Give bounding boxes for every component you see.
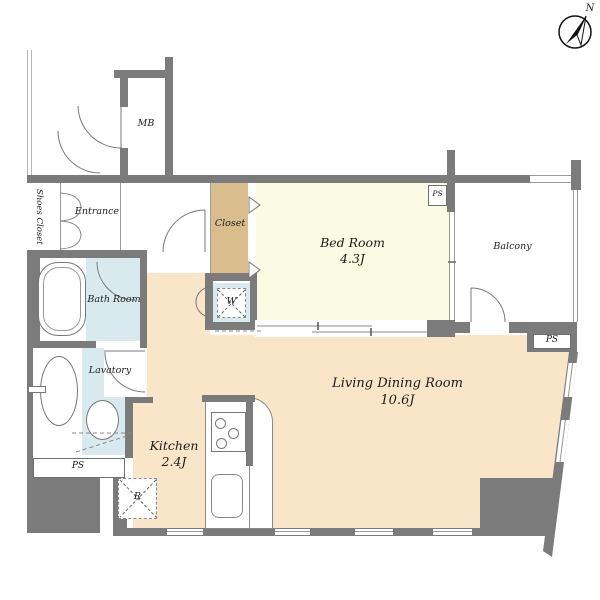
shoes-closet-door-icon bbox=[60, 193, 81, 249]
entrance-door-swing-icon bbox=[58, 131, 100, 173]
ps-label: PS bbox=[428, 189, 447, 199]
sliding-door-lines bbox=[257, 326, 427, 332]
bedroom-label: Bed Room4.3J bbox=[290, 235, 415, 268]
balcony-label: Balcony bbox=[475, 241, 550, 253]
structural-block bbox=[480, 478, 554, 536]
lavatory-label: Lavatory bbox=[72, 365, 148, 377]
bathroom-label: Bath Room bbox=[75, 294, 153, 306]
entrance-label: Entrance bbox=[62, 206, 132, 218]
closet-label: Closet bbox=[205, 218, 255, 230]
ps-label: PS bbox=[533, 335, 571, 347]
hall-door-swing-icon bbox=[163, 210, 205, 252]
shoes-closet-label: Shoes Closet bbox=[33, 186, 44, 248]
ps-label: PS bbox=[40, 461, 116, 473]
washer-label: W bbox=[217, 296, 246, 308]
mb-label: MB bbox=[130, 118, 162, 130]
north-compass-icon bbox=[559, 16, 591, 48]
mb-door-swing-icon bbox=[78, 106, 121, 148]
balcony-door-swing-icon bbox=[471, 288, 505, 322]
ldk-folding-door-icon bbox=[196, 302, 211, 317]
floor-plan: Shoes Closet Entrance MB Closet Bed Room… bbox=[0, 0, 600, 600]
closet-arrow-icon bbox=[249, 197, 260, 213]
living-label: Living Dining Room10.6J bbox=[300, 376, 495, 410]
ldk-folding-door-icon bbox=[196, 287, 211, 302]
sliding-door-ticks bbox=[318, 322, 371, 336]
north-label: N bbox=[582, 2, 598, 15]
closet-arrow-icon bbox=[249, 262, 260, 278]
kitchen-label: Kitchen2.4J bbox=[134, 438, 214, 471]
refrigerator-label: R bbox=[118, 491, 157, 503]
lavatory-dashed-lines bbox=[72, 433, 133, 452]
